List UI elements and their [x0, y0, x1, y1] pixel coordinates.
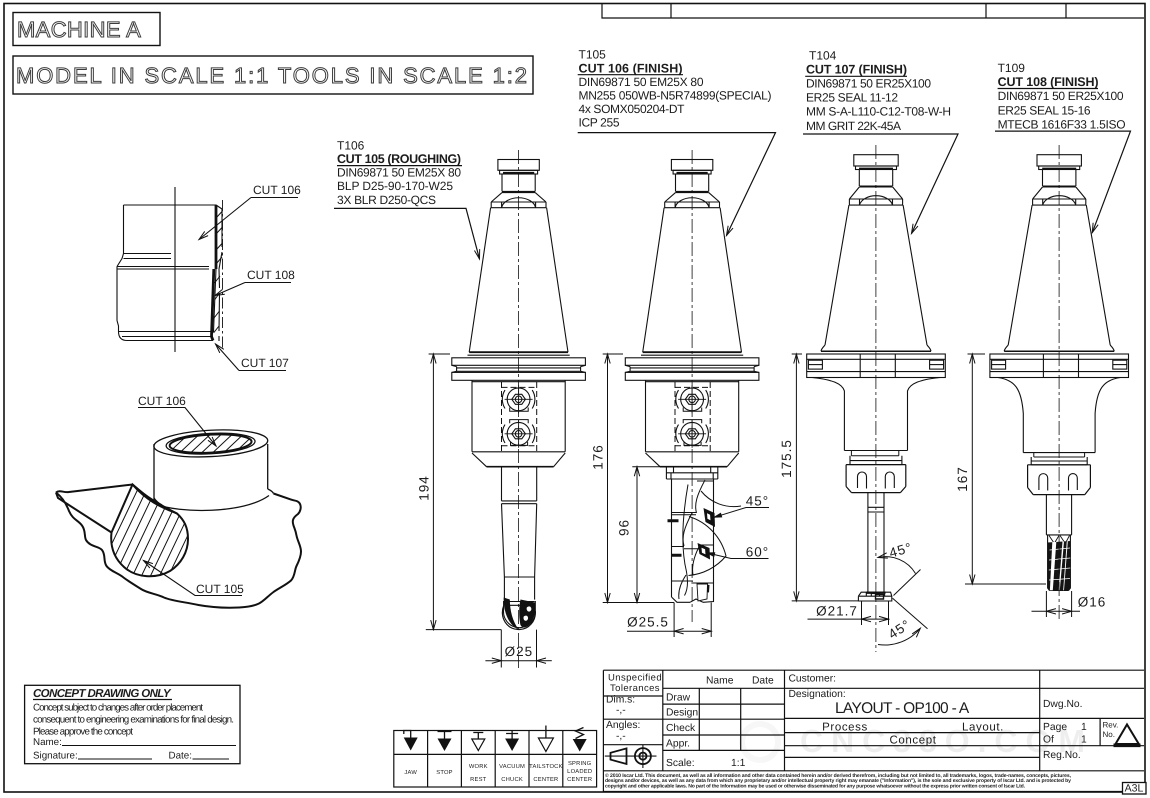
svg-text:T109: T109	[998, 61, 1026, 75]
svg-text:LAYOUT - OP100 - A: LAYOUT - OP100 - A	[835, 700, 971, 717]
svg-text:DIN69871 50 EM25X 80: DIN69871 50 EM25X 80	[579, 75, 704, 89]
svg-text:Tolerances: Tolerances	[610, 683, 660, 694]
svg-text:T104: T104	[809, 48, 837, 62]
svg-text:consequent to engineering exam: consequent to engineering examinations f…	[33, 715, 234, 726]
svg-text:Angles:: Angles:	[606, 720, 640, 731]
svg-text:3X BLR D250-QCS: 3X BLR D250-QCS	[337, 193, 436, 207]
svg-text:CUT 108: CUT 108	[247, 268, 295, 282]
svg-text:Name: Name	[706, 676, 734, 687]
svg-text:45°: 45°	[887, 540, 914, 561]
svg-text:Date:: Date:	[169, 751, 192, 762]
svg-text:96: 96	[617, 519, 632, 536]
svg-text:4x SOMX050204-DT: 4x SOMX050204-DT	[579, 102, 686, 116]
svg-text:DIN69871 50 ER25X100: DIN69871 50 ER25X100	[998, 89, 1124, 103]
svg-text:CUT 107 (FINISH): CUT 107 (FINISH)	[806, 62, 907, 76]
svg-text:Ø25: Ø25	[505, 644, 534, 659]
svg-text:T106: T106	[337, 138, 365, 152]
svg-text:Ø25.5: Ø25.5	[627, 615, 669, 630]
svg-text:Process: Process	[822, 722, 868, 734]
svg-text:Name:: Name:	[33, 737, 62, 748]
svg-text:DIN69871 50 ER25X100: DIN69871 50 ER25X100	[806, 77, 931, 91]
svg-text:Designation:: Designation:	[789, 689, 846, 700]
svg-text:-,-: -,-	[616, 731, 626, 742]
svg-text:Page: Page	[1043, 722, 1067, 733]
svg-text:ER25 SEAL 11-12: ER25 SEAL 11-12	[806, 91, 898, 105]
svg-text:Ø16: Ø16	[1078, 595, 1107, 610]
svg-text:LOADED: LOADED	[567, 768, 592, 775]
svg-text:Dwg.No.: Dwg.No.	[1043, 699, 1082, 710]
svg-text:45°: 45°	[746, 494, 769, 509]
svg-text:T105: T105	[579, 48, 607, 62]
svg-text:BLP D25-90-170-W25: BLP D25-90-170-W25	[337, 179, 453, 193]
svg-text:STOP: STOP	[436, 769, 452, 776]
svg-text:Rev.: Rev.	[1103, 721, 1119, 730]
svg-text:CUT 106: CUT 106	[253, 183, 301, 197]
svg-text:MM S-A-L110-C12-T08-W-H: MM S-A-L110-C12-T08-W-H	[806, 105, 951, 119]
svg-text:Please approve the concept: Please approve the concept	[33, 727, 133, 738]
svg-text:CUT 108 (FINISH): CUT 108 (FINISH)	[998, 75, 1099, 89]
svg-text:Check: Check	[666, 723, 696, 734]
svg-text:CENTER: CENTER	[533, 776, 558, 783]
svg-text:1: 1	[1081, 735, 1087, 746]
svg-text:No.: No.	[1103, 730, 1115, 739]
svg-text:Design: Design	[666, 708, 698, 719]
svg-text:MN255 050WB-N5R74899(SPECIAL): MN255 050WB-N5R74899(SPECIAL)	[579, 88, 772, 102]
svg-text:-,-: -,-	[616, 705, 626, 716]
svg-text:Signature:: Signature:	[33, 751, 78, 762]
svg-text:CUT 106 (FINISH): CUT 106 (FINISH)	[579, 61, 683, 75]
svg-text:175.5: 175.5	[779, 439, 794, 478]
svg-text:CONCEPT DRAWING ONLY: CONCEPT DRAWING ONLY	[33, 688, 172, 700]
svg-text:CUT 105: CUT 105	[196, 582, 244, 596]
svg-text:Layout.: Layout.	[962, 722, 1004, 734]
svg-text:copyright and other applicable: copyright and other applicable laws. No …	[605, 784, 1026, 790]
svg-text:MTECB 1616F33 1.5ISO: MTECB 1616F33 1.5ISO	[998, 118, 1126, 132]
svg-text:REST: REST	[470, 776, 487, 783]
svg-text:CENTER: CENTER	[567, 776, 592, 783]
svg-text:CUT 106: CUT 106	[138, 394, 186, 408]
svg-text:Draw: Draw	[666, 693, 691, 704]
svg-text:Customer:: Customer:	[789, 674, 837, 685]
svg-text:Concept subject to changes aft: Concept subject to changes after order p…	[33, 703, 203, 714]
svg-text:CUT 105 (ROUGHING): CUT 105 (ROUGHING)	[337, 152, 461, 166]
svg-text:176: 176	[591, 444, 606, 470]
svg-text:Dim.s:: Dim.s:	[606, 695, 635, 706]
svg-text:DIN69871 50 EM25X 80: DIN69871 50 EM25X 80	[337, 166, 461, 180]
svg-text:1:1: 1:1	[731, 758, 746, 769]
svg-text:Of: Of	[1043, 735, 1054, 746]
svg-text:MODEL IN SCALE 1:1 TOOLS IN SC: MODEL IN SCALE 1:1 TOOLS IN SCALE 1:2	[16, 63, 529, 88]
svg-text:Unspecified: Unspecified	[608, 673, 662, 684]
svg-text:A3L: A3L	[1125, 783, 1144, 795]
svg-text:Ø21.7: Ø21.7	[816, 604, 858, 619]
svg-text:VACUUM: VACUUM	[499, 763, 525, 770]
svg-text:Scale:: Scale:	[666, 758, 695, 769]
svg-text:60°: 60°	[746, 545, 769, 560]
svg-text:ER25 SEAL 15-16: ER25 SEAL 15-16	[998, 103, 1091, 117]
svg-text:MM GRIT 22K-45A: MM GRIT 22K-45A	[806, 119, 901, 133]
svg-text:WORK: WORK	[469, 763, 488, 770]
svg-text:Appr.: Appr.	[666, 739, 690, 750]
svg-text:Date: Date	[752, 676, 774, 687]
svg-text:TAILSTOCK: TAILSTOCK	[529, 763, 562, 770]
svg-text:ICP 255: ICP 255	[579, 115, 620, 129]
svg-text:SPRING: SPRING	[568, 760, 592, 767]
svg-text:Reg.No.: Reg.No.	[1043, 750, 1081, 761]
svg-text:MACHINE A: MACHINE A	[17, 17, 144, 42]
svg-text:CHUCK: CHUCK	[501, 776, 523, 783]
svg-text:Concept: Concept	[889, 735, 936, 747]
svg-text:194: 194	[417, 475, 432, 501]
svg-text:167: 167	[955, 466, 970, 492]
svg-text:1: 1	[1081, 722, 1087, 733]
svg-text:JAW: JAW	[404, 770, 417, 776]
svg-text:CUT 107: CUT 107	[241, 356, 289, 370]
